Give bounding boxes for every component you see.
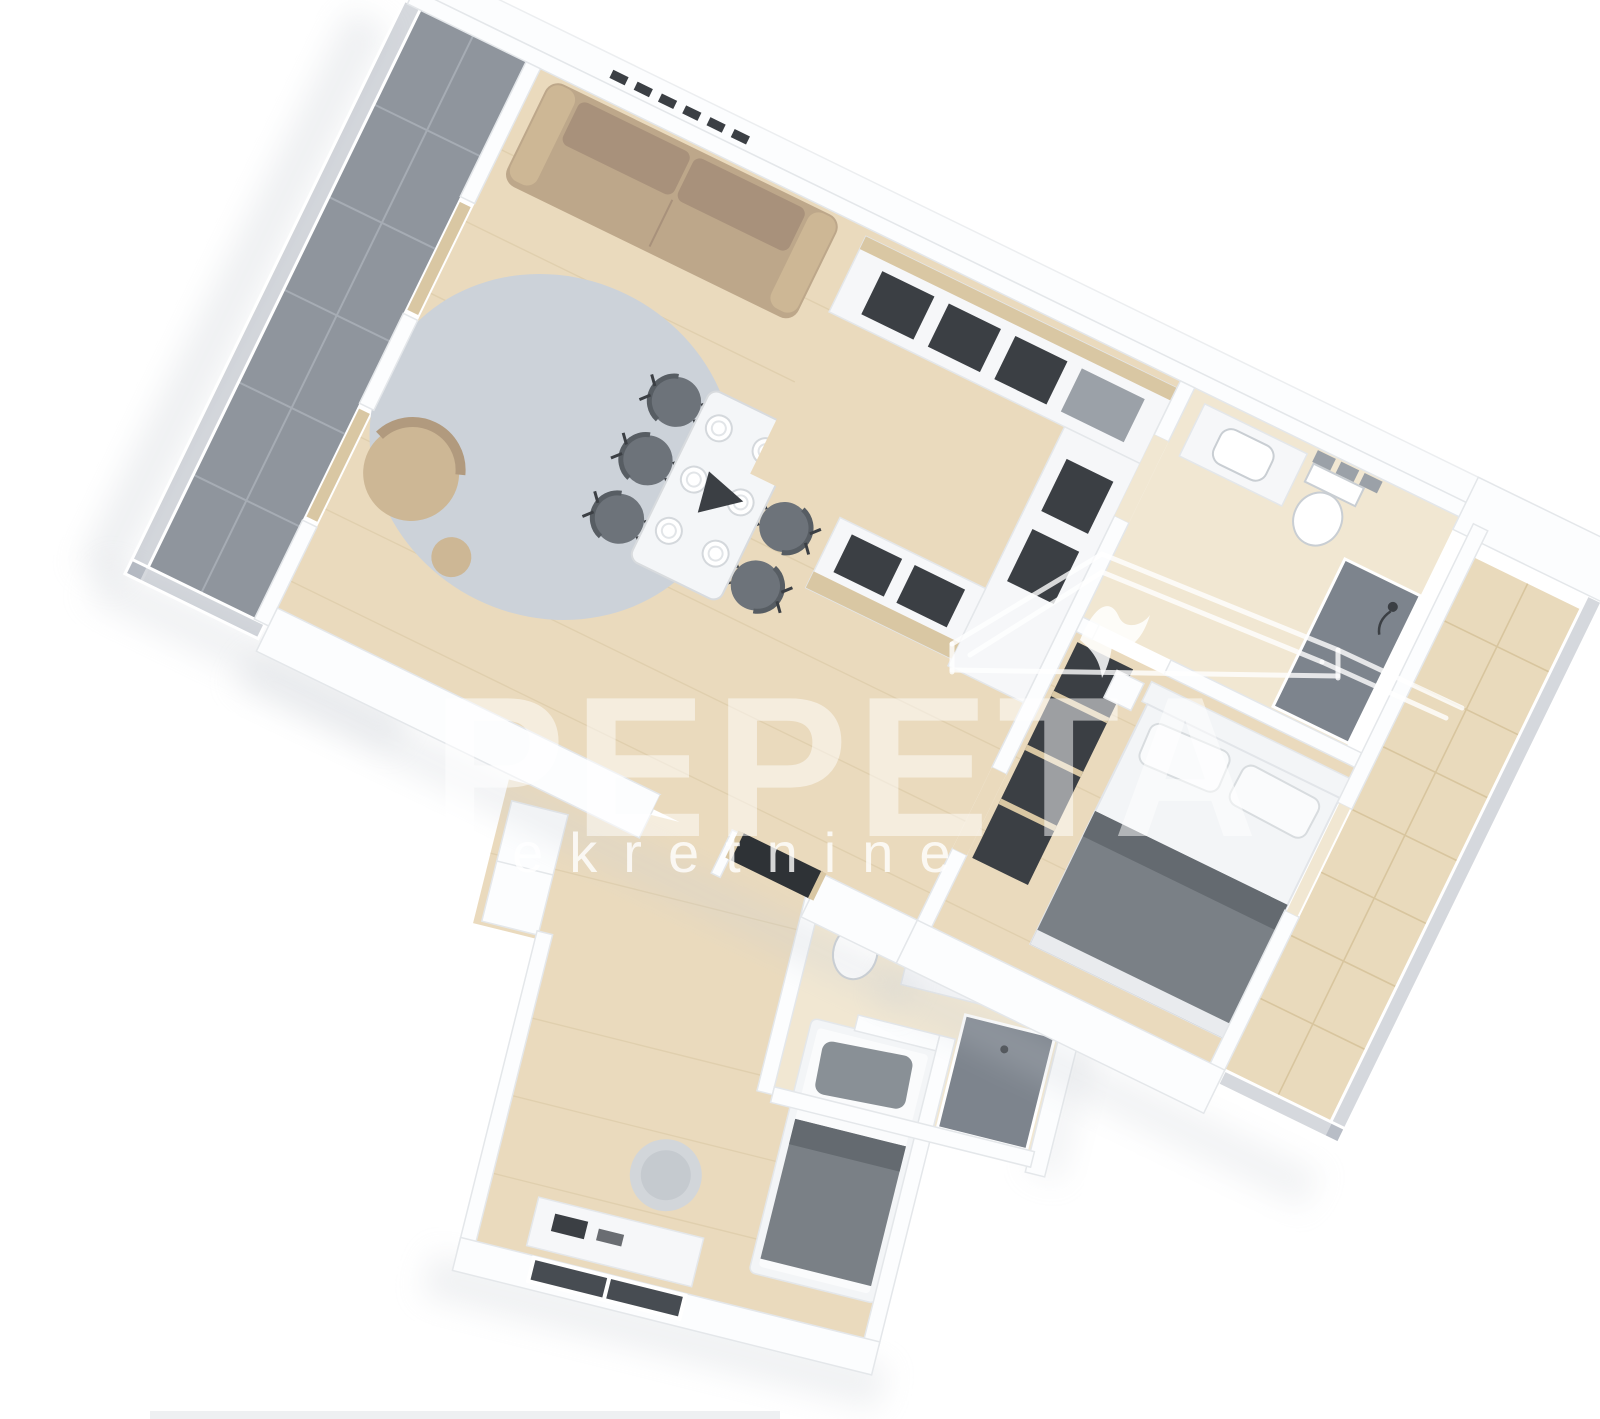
floorplan-canvas: PEPETA nekretnine: [0, 0, 1600, 1419]
watermark-subtitle-text: nekretnine: [455, 821, 977, 884]
floorplan-3d-render: PEPETA nekretnine: [0, 0, 1600, 1419]
bottom-edge-strip: [150, 1411, 780, 1419]
